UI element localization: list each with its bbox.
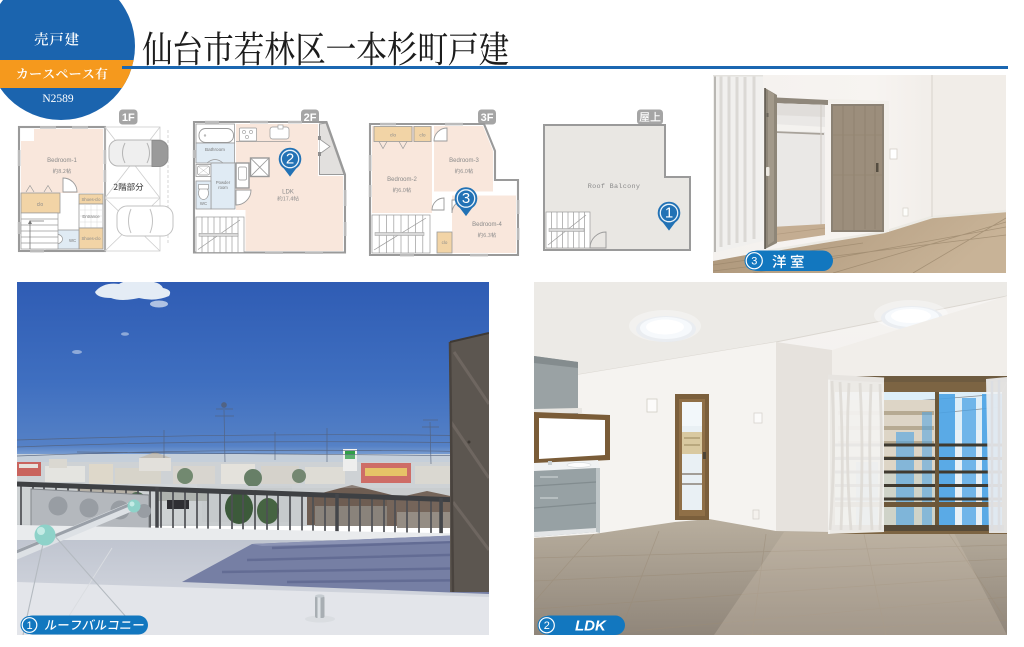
svg-text:1: 1 [26, 620, 32, 632]
svg-text:Bedroom-2: Bedroom-2 [387, 177, 417, 183]
svg-text:Bedroom-4: Bedroom-4 [472, 222, 502, 228]
svg-text:1F: 1F [122, 112, 135, 124]
svg-text:Bathroom: Bathroom [205, 147, 225, 152]
svg-text:2: 2 [286, 151, 294, 168]
svg-text:Shoes-clo: Shoes-clo [81, 236, 101, 241]
svg-text:room: room [218, 185, 228, 190]
svg-text:Entrance: Entrance [82, 214, 100, 219]
svg-text:2: 2 [544, 620, 550, 632]
svg-text:1: 1 [665, 205, 673, 222]
svg-text:clo: clo [442, 240, 448, 245]
svg-text:WC: WC [69, 238, 76, 243]
svg-text:Roof Balcony: Roof Balcony [588, 183, 641, 191]
svg-text:clo: clo [390, 133, 396, 139]
svg-text:N2589: N2589 [42, 93, 74, 105]
svg-text:clo: clo [419, 133, 425, 139]
svg-text:LDK: LDK [282, 190, 294, 196]
svg-text:Shoes-clo: Shoes-clo [81, 197, 101, 202]
svg-text:clo: clo [37, 202, 44, 208]
svg-text:Bedroom-1: Bedroom-1 [47, 158, 77, 164]
svg-text:3: 3 [462, 190, 470, 207]
svg-text:3: 3 [751, 256, 757, 268]
svg-text:3F: 3F [481, 112, 494, 124]
svg-text:WC: WC [200, 201, 207, 206]
svg-text:LDK: LDK [575, 618, 607, 635]
svg-text:Bedroom-3: Bedroom-3 [449, 158, 479, 164]
